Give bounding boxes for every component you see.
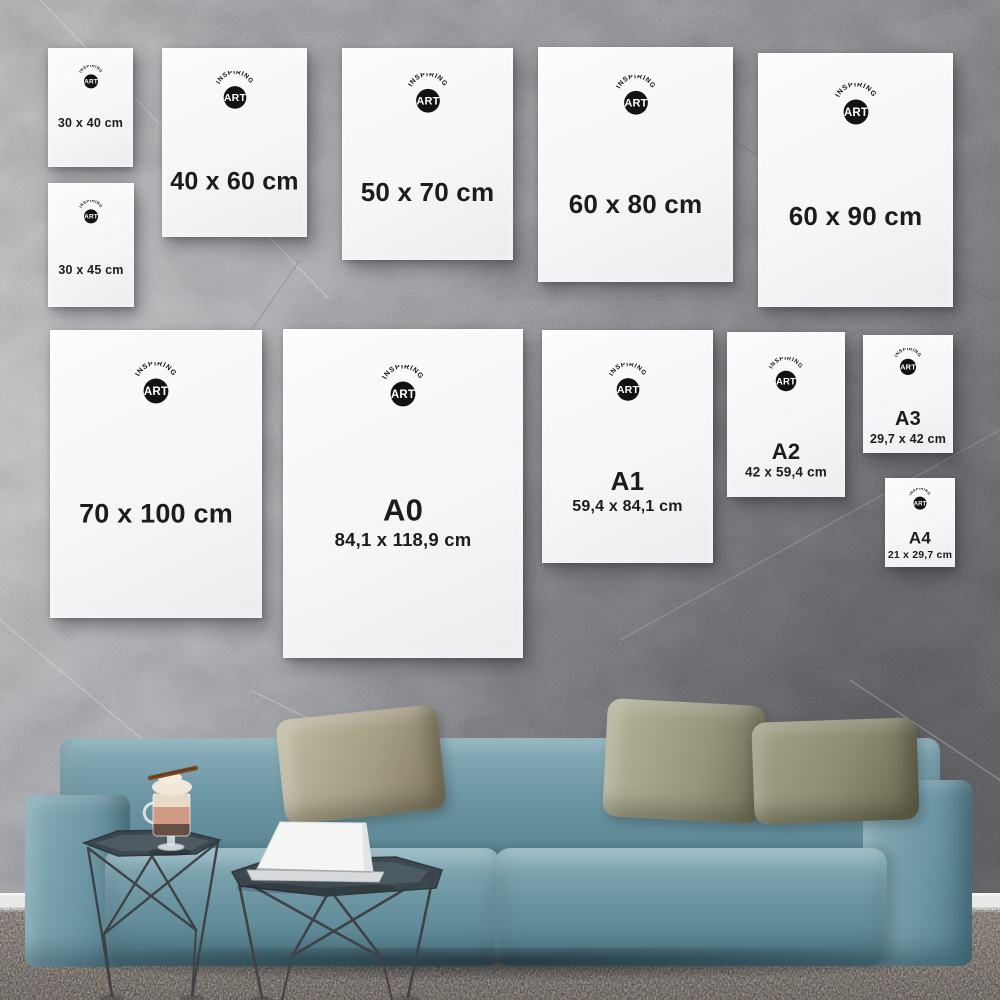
side-table-left bbox=[84, 830, 220, 996]
table-feet-shadows bbox=[100, 995, 420, 1000]
foreground-furniture bbox=[0, 0, 1000, 1000]
poster-size-guide-photo: INSPIRINGART30 x 40 cmINSPIRINGART40 x 6… bbox=[0, 0, 1000, 1000]
